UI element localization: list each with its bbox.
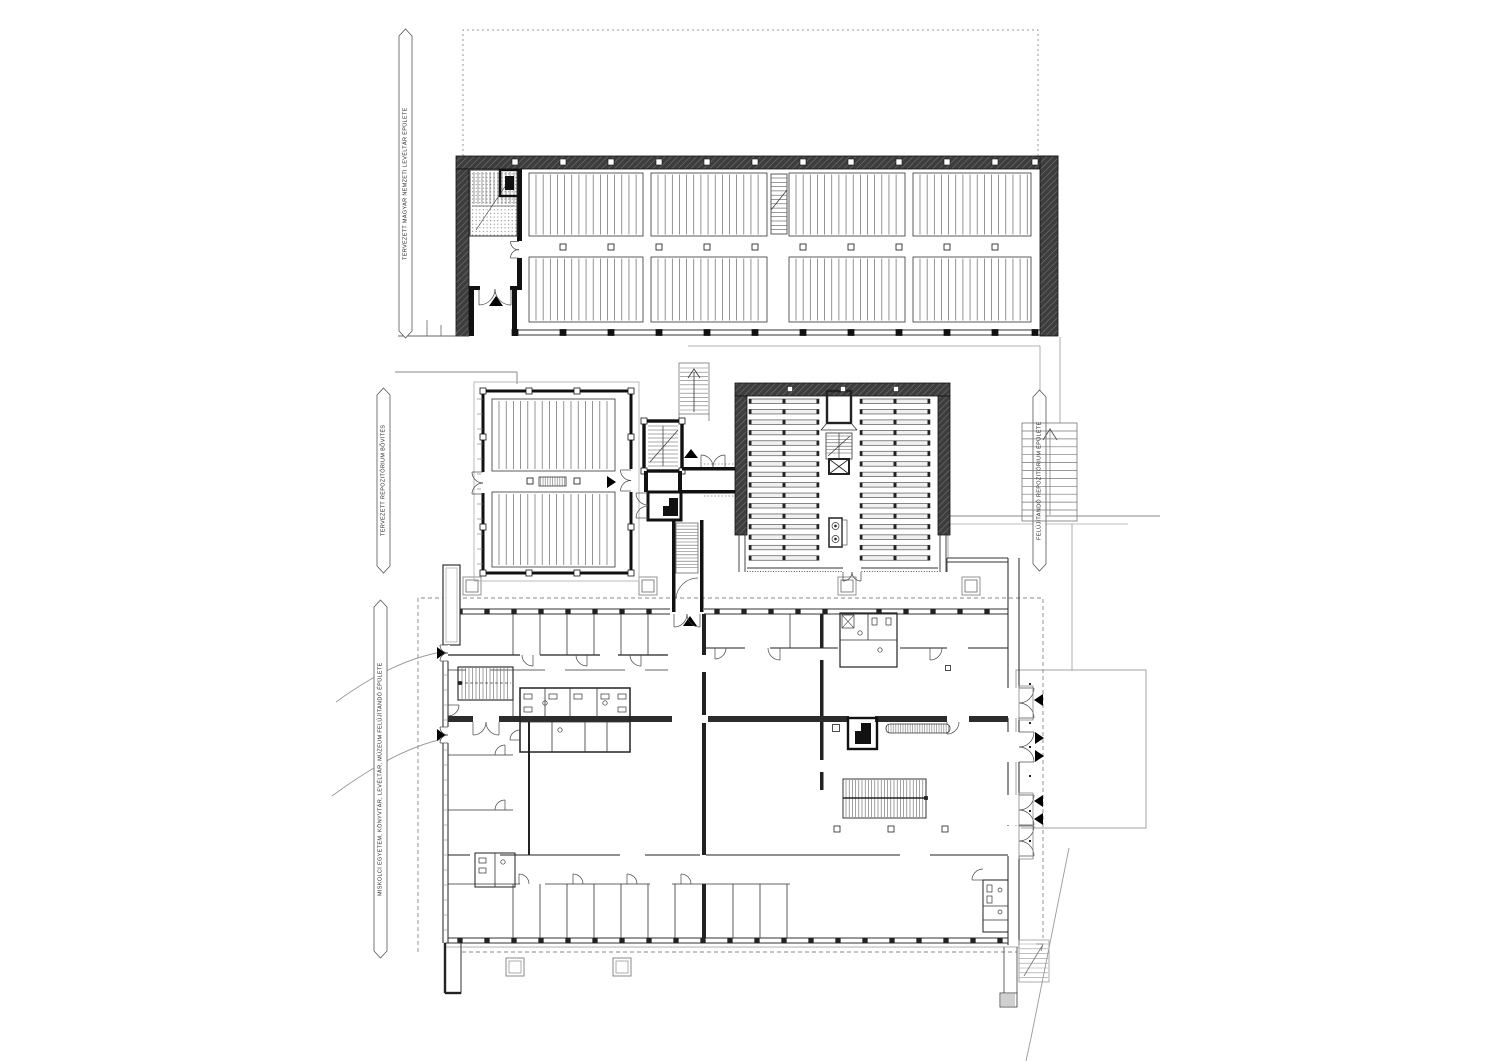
floor-plan-canvas: TERVEZETT MAGYAR NEMZETI LEVÉLTÁR ÉPÜLET…	[0, 0, 1500, 1061]
east-stair	[1022, 423, 1077, 521]
bottom-building	[437, 558, 1049, 1007]
mid-right-building	[735, 383, 950, 581]
top-building	[456, 156, 1058, 336]
mid-left-building	[472, 382, 639, 581]
floor-plan-svg	[0, 0, 1500, 1061]
